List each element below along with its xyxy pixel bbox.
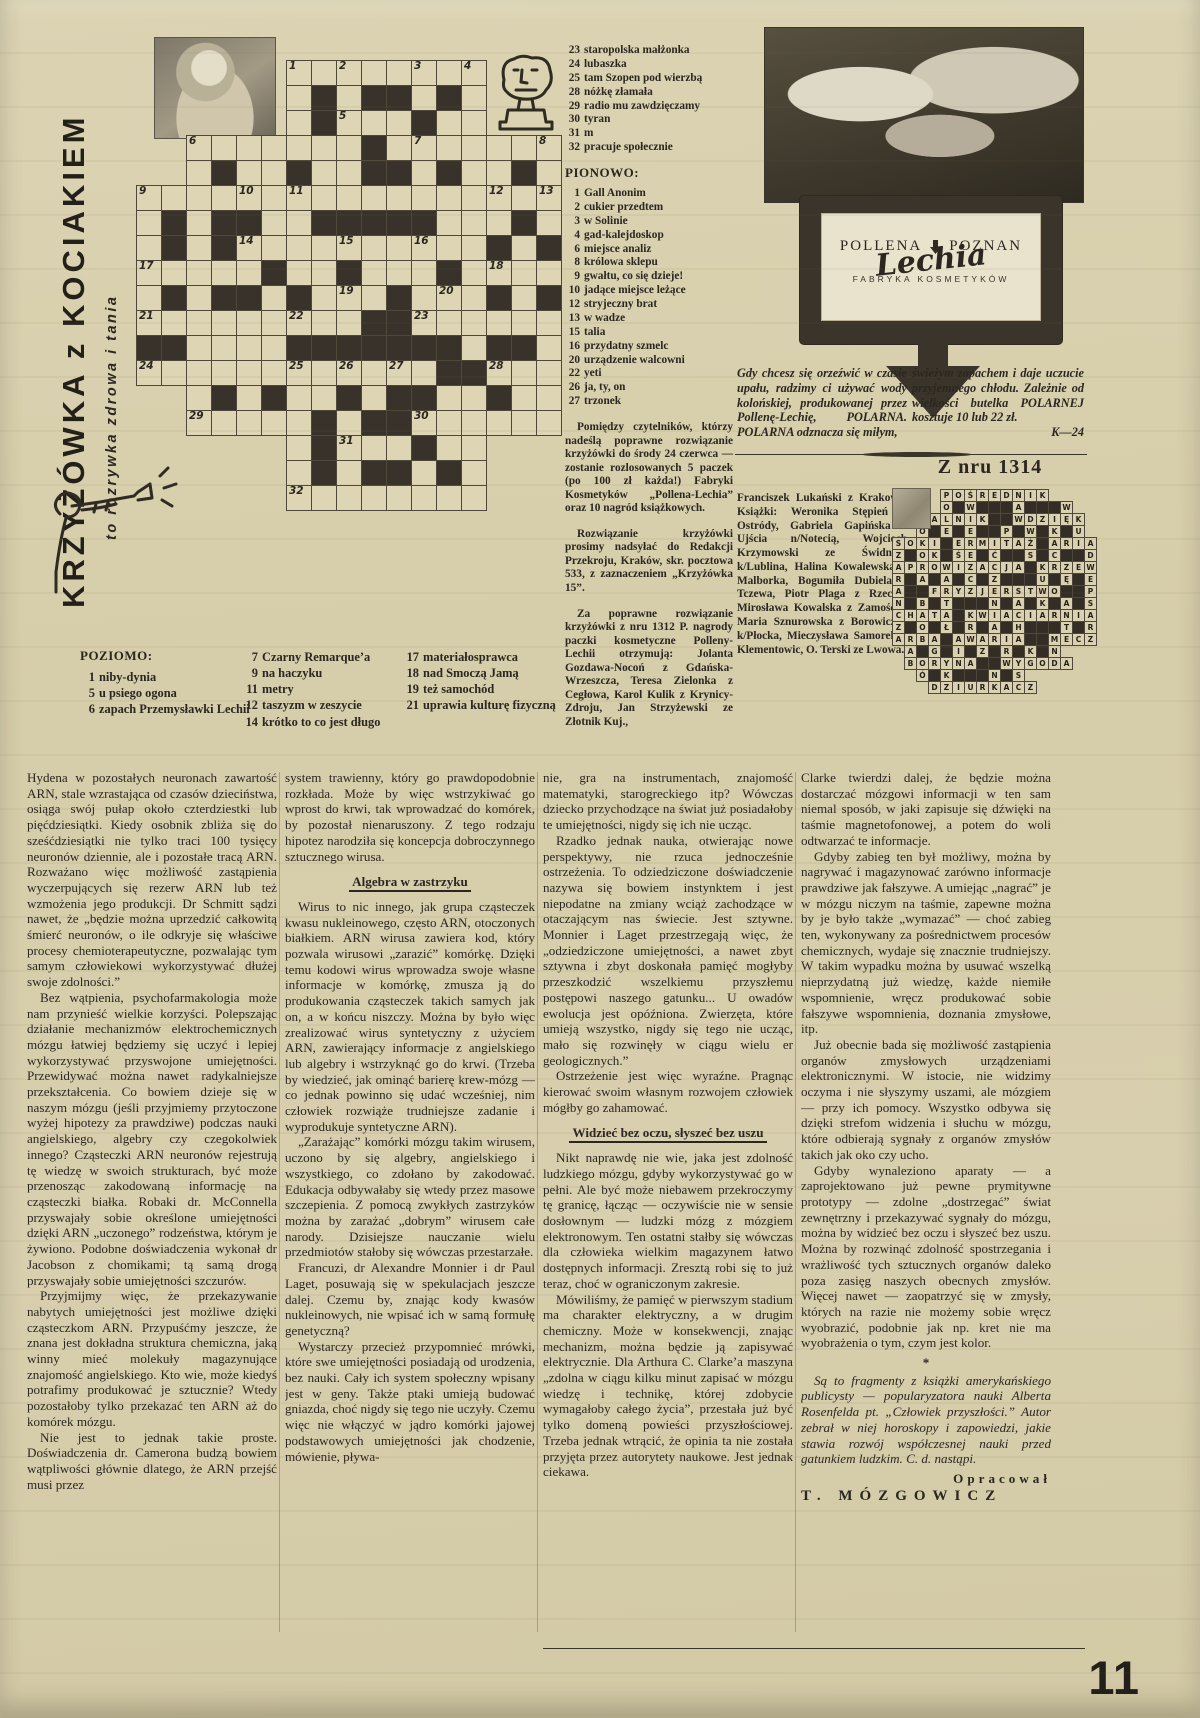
article-paragraph: Francuzi, dr Alexandre Monnier i dr Paul…: [285, 1260, 535, 1339]
ad-copy-left: Gdy chcesz się orzeźwić w czasie upału, …: [737, 366, 907, 440]
crossword-cell: [211, 135, 237, 161]
crossword-cell: [286, 260, 312, 286]
crossword-cell: 6: [186, 135, 212, 161]
black-cell: [486, 385, 512, 411]
crossword-cell: [261, 185, 287, 211]
crossword-cell: [461, 385, 487, 411]
crossword-cell: [536, 360, 562, 386]
crossword-cell: [311, 360, 337, 386]
contest-prize-note: Pomiędzy czytelników, którzy nadeślą pop…: [565, 421, 733, 516]
crossword-cell: [261, 335, 287, 361]
black-cell: [311, 410, 337, 436]
crossword-cell: [286, 110, 312, 136]
crossword-cell: 8: [536, 135, 562, 161]
black-cell: [161, 285, 187, 311]
black-cell: [236, 210, 262, 236]
crossword-cell: [311, 135, 337, 161]
article-paragraph: nie, gra na instrumentach, znajomość mat…: [543, 770, 793, 833]
crossword-cell: [136, 235, 162, 261]
across-clues-23-32: 23staropolska małżonka24lubaszka25tam Sz…: [565, 44, 733, 155]
black-cell: [411, 435, 437, 461]
crossword-cell: [461, 310, 487, 336]
article-paragraph: Hydena w pozostałych neuronach zawartość…: [27, 770, 277, 990]
solution-heading: Z nru 1314: [880, 456, 1100, 479]
crossword-cell: 27: [386, 360, 412, 386]
black-cell: [286, 285, 312, 311]
clue-item: 10jadące miejsce leżące: [584, 284, 733, 297]
article-column-4: Clarke twierdzi dalej, że będzie można d…: [801, 770, 1051, 1642]
article-column-3: nie, gra na instrumentach, znajomość mat…: [543, 770, 793, 1642]
crossword-cell: [436, 485, 462, 511]
crossword-cell: [536, 310, 562, 336]
crossword-cell: [261, 210, 287, 236]
column-rule: [279, 772, 280, 1632]
article-paragraph: Gdyby wynaleziono aparaty — a zaprojekto…: [801, 1163, 1051, 1351]
black-cell: [536, 285, 562, 311]
black-cell: [361, 410, 387, 436]
crossword-cell: [511, 235, 537, 261]
black-cell: [311, 110, 337, 136]
black-cell: [411, 335, 437, 361]
crossword-cell: [311, 260, 337, 286]
crossword-cell: [186, 160, 212, 186]
crossword-cell: [236, 385, 262, 411]
crossword-cell: [461, 410, 487, 436]
black-cell: [336, 335, 362, 361]
down-clues-heading: PIONOWO:: [565, 165, 733, 181]
black-cell: [211, 160, 237, 186]
black-cell: [461, 360, 487, 386]
crossword-cell: [211, 310, 237, 336]
black-cell: [386, 285, 412, 311]
clue-item: 1niby-dynia: [99, 670, 265, 685]
clue-item: 18nad Smoczą Jamą: [423, 666, 562, 681]
article-paragraph: Nikt naprawdę nie wie, jaka jest zdolnoś…: [543, 1150, 793, 1291]
black-cell: [436, 460, 462, 486]
black-cell: [211, 210, 237, 236]
pollena-ad-frame: POLLENA POZNAN Lechia FABRYKA KOSMETYKÓW: [800, 196, 1062, 344]
crossword-cell: [261, 285, 287, 311]
article-paragraph: Przyjmijmy więc, że przekazywanie nabyty…: [27, 1288, 277, 1429]
crossword-cell: [486, 410, 512, 436]
article-paragraph: Clarke twierdzi dalej, że będzie można d…: [801, 770, 1051, 849]
black-cell: [411, 385, 437, 411]
clue-item: 6miejsce analiz: [584, 243, 733, 256]
pollena-ad-label: POLLENA POZNAN Lechia FABRYKA KOSMETYKÓW: [822, 214, 1040, 320]
black-cell: [361, 135, 387, 161]
clue-item: 20urządzenie walcowni: [584, 354, 733, 367]
crossword-cell: [336, 460, 362, 486]
crossword-cell: 32: [286, 485, 312, 511]
black-cell: [486, 335, 512, 361]
crossword-cell: [411, 360, 437, 386]
crossword-cell: [436, 235, 462, 261]
crossword-cell: [311, 235, 337, 261]
clue-item: 26ja, ty, on: [584, 381, 733, 394]
crossword-cell: [236, 335, 262, 361]
black-cell: [261, 385, 287, 411]
crossword-cell: 19: [336, 285, 362, 311]
column-rule: [537, 772, 538, 1632]
crossword-cell: [411, 185, 437, 211]
crossword-cell: 16: [411, 235, 437, 261]
crossword-cell: [261, 310, 287, 336]
black-cell: [286, 160, 312, 186]
crossword-cell: 3: [411, 60, 437, 86]
crossword-cell: 31: [336, 435, 362, 461]
across-clues-heading: POZIOMO:: [80, 648, 265, 664]
crossword-cell: [411, 460, 437, 486]
crossword-cell: [286, 235, 312, 261]
clue-item: 28nóżkę złamała: [584, 86, 733, 99]
black-cell: [161, 335, 187, 361]
crossword-cell: [261, 160, 287, 186]
crossword-cell: [461, 235, 487, 261]
crossword-cell: 22: [286, 310, 312, 336]
crossword-cell: [186, 210, 212, 236]
crossword-cell: [411, 285, 437, 311]
black-cell: [436, 85, 462, 111]
crossword-cell: [186, 310, 212, 336]
black-cell: [336, 260, 362, 286]
black-cell: [511, 210, 537, 236]
solution-letter-cell: Z: [1024, 681, 1037, 694]
crossword-cell: [511, 310, 537, 336]
crossword-cell: [261, 135, 287, 161]
crossword-cell: [361, 60, 387, 86]
crossword-cell: [236, 135, 262, 161]
clue-item: 12stryjeczny brat: [584, 298, 733, 311]
article-paragraph: system trawienny, który go prawdopodobni…: [285, 770, 535, 864]
crossword-cell: [186, 185, 212, 211]
crossword-cell: [436, 60, 462, 86]
crossword-cell: [236, 160, 262, 186]
black-cell: [211, 385, 237, 411]
crossword-cell: [361, 385, 387, 411]
crossword-cell: 4: [461, 60, 487, 86]
crossword-cell: [136, 210, 162, 236]
black-cell: [211, 235, 237, 261]
clue-item: 9gwałtu, co się dzieje!: [584, 270, 733, 283]
crossword-cell: [311, 385, 337, 411]
crossword-cell: [511, 185, 537, 211]
crossword-cell: [536, 335, 562, 361]
article-paragraph: Wystarczy przecież przypomnieć mrówki, k…: [285, 1339, 535, 1465]
magazine-page: KRZYŻÓWKA z KOCIAKIEM to rozrywka zdrowa…: [0, 0, 1200, 1718]
crossword-cell: 2: [336, 60, 362, 86]
crossword-cell: [461, 485, 487, 511]
crossword-cell: [261, 410, 287, 436]
crossword-cell: [536, 210, 562, 236]
ad-copy-right-text: świeżym zapachem i daje uczucie przyjemn…: [912, 366, 1084, 424]
crossword-cell: [436, 435, 462, 461]
crossword-cell: [436, 310, 462, 336]
crossword-cell: [461, 110, 487, 136]
crossword-cell: [261, 360, 287, 386]
crossword-cell: [161, 360, 187, 386]
black-cell: [436, 260, 462, 286]
crossword-cell: [536, 160, 562, 186]
crossword-cell: [511, 410, 537, 436]
crossword-cell: [461, 85, 487, 111]
black-cell: [361, 335, 387, 361]
crossword-cell: [511, 385, 537, 411]
crossword-cell: [161, 185, 187, 211]
crossword-cell: [336, 410, 362, 436]
crossword-cell: [286, 135, 312, 161]
clue-item: 14krótko to co jest długo: [262, 715, 433, 730]
crossword-cell: [211, 185, 237, 211]
crossword-cell: [461, 460, 487, 486]
black-cell: [386, 335, 412, 361]
crossword-cell: [361, 360, 387, 386]
clue-item: 25tam Szopen pod wierzbą: [584, 72, 733, 85]
clue-item: 30tyran: [584, 113, 733, 126]
black-cell: [311, 335, 337, 361]
crossword-cell: [286, 210, 312, 236]
crossword-cell: [511, 360, 537, 386]
across-clues-col3: 17materiałosprawca18nad Smoczą Jamą19też…: [404, 650, 562, 715]
black-cell: [361, 210, 387, 236]
ad-copy-right: świeżym zapachem i daje uczucie przyjemn…: [912, 366, 1084, 440]
crossword-cell: 15: [336, 235, 362, 261]
solution-letter-cell: Z: [1084, 633, 1097, 646]
crossword-cell: 1: [286, 60, 312, 86]
black-cell: [261, 260, 287, 286]
crossword-cell: [186, 285, 212, 311]
black-cell: [436, 360, 462, 386]
black-cell: [486, 235, 512, 261]
crossword-cell: 20: [436, 285, 462, 311]
ad-code: K—24: [912, 425, 1084, 440]
crossword-cell: [436, 210, 462, 236]
clue-item: 19też samochód: [423, 682, 562, 697]
crossword-cell: 17: [136, 260, 162, 286]
crossword-cell: [386, 485, 412, 511]
black-cell: [436, 335, 462, 361]
clue-item: 29radio mu zawdzięczamy: [584, 100, 733, 113]
black-cell: [336, 385, 362, 411]
solution-letter-cell: A: [1060, 657, 1073, 670]
crossword-cell: [436, 385, 462, 411]
article-paragraph: Ostrzeżenie jest więc wyraźne. Pragnąc k…: [543, 1068, 793, 1115]
article-subheading: Widzieć bez oczu, słyszeć bez uszu: [543, 1125, 793, 1141]
crossword-cell: 26: [336, 360, 362, 386]
black-cell: [136, 335, 162, 361]
black-cell: [511, 160, 537, 186]
crossword-cell: [186, 260, 212, 286]
crossword-cell: [186, 360, 212, 386]
clue-item: 15talia: [584, 326, 733, 339]
contest-winners-intro: Za poprawne rozwiązanie krzyżówki z nru …: [565, 608, 733, 730]
crossword-cell: [186, 235, 212, 261]
crossword-cell: [386, 260, 412, 286]
crossword-cell: [461, 210, 487, 236]
crossword-cell: [386, 135, 412, 161]
crossword-cell: 28: [486, 360, 512, 386]
crossword-cell: 13: [536, 185, 562, 211]
crossword-cell: [311, 60, 337, 86]
crossword-cell: [411, 260, 437, 286]
black-cell: [161, 210, 187, 236]
crossword-cell: [311, 160, 337, 186]
crossword-cell: [386, 60, 412, 86]
crossword-cell: [311, 285, 337, 311]
clue-item: 4gad-kalejdoskop: [584, 229, 733, 242]
crossword-cell: [336, 160, 362, 186]
crossword-cell: [361, 235, 387, 261]
crossword-cell: [336, 185, 362, 211]
article-paragraph: Mówiliśmy, że pamięć w pierwszym stadium…: [543, 1292, 793, 1480]
clue-item: 6zapach Przemysławki Lechii: [99, 702, 265, 717]
crossword-cell: 25: [286, 360, 312, 386]
black-cell: [236, 285, 262, 311]
crossword-cell: [486, 135, 512, 161]
crossword-cell: [311, 485, 337, 511]
crossword-cell: [536, 260, 562, 286]
crossword-cell: 21: [136, 310, 162, 336]
crossword-cell: [361, 185, 387, 211]
crossword-cell: [236, 410, 262, 436]
article-paragraph: Gdyby zabieg ten był możliwy, można by n…: [801, 849, 1051, 1037]
crossword-cell: [436, 135, 462, 161]
clue-item: 5u psiego ogona: [99, 686, 265, 701]
clue-item: 27trzonek: [584, 395, 733, 408]
clue-item: 1Gall Anonim: [584, 187, 733, 200]
crossword-cell: 9: [136, 185, 162, 211]
black-cell: [511, 335, 537, 361]
crossword-cell: 10: [236, 185, 262, 211]
crossword-cell: [461, 185, 487, 211]
article-paragraph: Już obecnie bada się możliwość zastąpien…: [801, 1037, 1051, 1163]
article-paragraph: Nie jest to jednak takie proste. Doświad…: [27, 1430, 277, 1493]
crossword-cell: [161, 260, 187, 286]
crossword-cell: 11: [286, 185, 312, 211]
crossword-cell: [286, 410, 312, 436]
down-clues: 1Gall Anonim2cukier przedtem3w Solinie4g…: [565, 187, 733, 409]
crossword-cell: [411, 160, 437, 186]
article-paragraph: Wirus to nic innego, jak grupa cząstecze…: [285, 899, 535, 1135]
article-subheading: Algebra w zastrzyku: [285, 874, 535, 890]
black-cell: [336, 210, 362, 236]
crossword-cell: [461, 260, 487, 286]
black-cell: [386, 85, 412, 111]
crossword-cell: [211, 360, 237, 386]
crossword-cell: [511, 260, 537, 286]
clues-column: 23staropolska małżonka24lubaszka25tam Sz…: [565, 44, 733, 729]
across-clues-col1: POZIOMO: 1niby-dynia5u psiego ogona6zapa…: [80, 648, 265, 718]
black-cell: [311, 435, 337, 461]
black-cell: [386, 160, 412, 186]
article-paragraph: Rzadko jednak nauka, otwierając nowe per…: [543, 833, 793, 1069]
crossword-cell: [211, 260, 237, 286]
crossword-cell: 5: [336, 110, 362, 136]
crossword-cell: [436, 110, 462, 136]
article-author: T. MÓZGOWICZ: [801, 1487, 1051, 1505]
black-cell: [311, 460, 337, 486]
article-paragraph: Bez wątpienia, psychofarmakologia może n…: [27, 990, 277, 1288]
crossword-cell: 29: [186, 410, 212, 436]
clue-item: 31m: [584, 127, 733, 140]
crossword-cell: [186, 385, 212, 411]
black-cell: [386, 310, 412, 336]
crossword-cell: [236, 310, 262, 336]
page-number: 11: [1040, 1650, 1140, 1705]
crossword-cell: 30: [411, 410, 437, 436]
clue-item: 3w Solinie: [584, 215, 733, 228]
black-cell: [211, 285, 237, 311]
crossword-cell: [486, 160, 512, 186]
article-column-2: system trawienny, który go prawdopodobni…: [285, 770, 535, 1642]
black-cell: [361, 460, 387, 486]
black-cell: [361, 310, 387, 336]
black-cell: [386, 460, 412, 486]
crossword-cell: [361, 285, 387, 311]
crossword-cell: [411, 85, 437, 111]
crossword-grid: 1234567891011121314151617181920212223242…: [136, 60, 563, 512]
crossword-cell: [536, 410, 562, 436]
black-cell: [411, 210, 437, 236]
crossword-cell: [511, 285, 537, 311]
crossword-cell: [336, 485, 362, 511]
crossword-cell: [386, 110, 412, 136]
black-cell: [536, 235, 562, 261]
crossword-cell: [411, 485, 437, 511]
crossword-cell: [261, 235, 287, 261]
crossword-cell: [311, 310, 337, 336]
crossword-cell: 18: [486, 260, 512, 286]
crossword-cell: [311, 185, 337, 211]
crossword-cell: [286, 460, 312, 486]
clue-item: 17materiałosprawca: [423, 650, 562, 665]
article-credit: Opracował: [801, 1471, 1051, 1487]
crossword-cell: [211, 410, 237, 436]
article-paragraph: „Zarażając” komórki mózgu takim wirusem,…: [285, 1134, 535, 1260]
clue-item: 22yeti: [584, 367, 733, 380]
crossword-cell: [486, 310, 512, 336]
crossword-cell: 23: [411, 310, 437, 336]
crossword-cell: [511, 135, 537, 161]
crossword-cell: [536, 385, 562, 411]
crossword-cell: 24: [136, 360, 162, 386]
column-rule: [795, 772, 796, 1632]
crossword-cell: [336, 135, 362, 161]
black-cell: [386, 410, 412, 436]
crossword-cell: 12: [486, 185, 512, 211]
black-cell: [361, 85, 387, 111]
article-column-1: Hydena w pozostałych neuronach zawartość…: [27, 770, 277, 1642]
clue-item: 8królowa sklepu: [584, 256, 733, 269]
crossword-cell: [336, 85, 362, 111]
black-cell: [386, 385, 412, 411]
crossword-cell: [211, 335, 237, 361]
crossword-cell: [386, 435, 412, 461]
black-cell: [486, 285, 512, 311]
crossword-cell: [461, 160, 487, 186]
solution-stamp-photo: [893, 489, 930, 528]
crossword-cell: [236, 260, 262, 286]
footer-rule: [543, 1648, 1085, 1649]
crossword-cell: [386, 235, 412, 261]
clue-item: 23staropolska małżonka: [584, 44, 733, 57]
contest-winners-list: Franciszek Lukański z Krakowa. Książki: …: [737, 492, 907, 657]
crossword-cell: [361, 260, 387, 286]
crossword-cell: [386, 185, 412, 211]
crossword-cell: [286, 385, 312, 411]
article-italic-note: Są to fragmenty z książki amerykańskiego…: [801, 1373, 1051, 1467]
crossword-cell: [361, 110, 387, 136]
crossword-cell: 14: [236, 235, 262, 261]
